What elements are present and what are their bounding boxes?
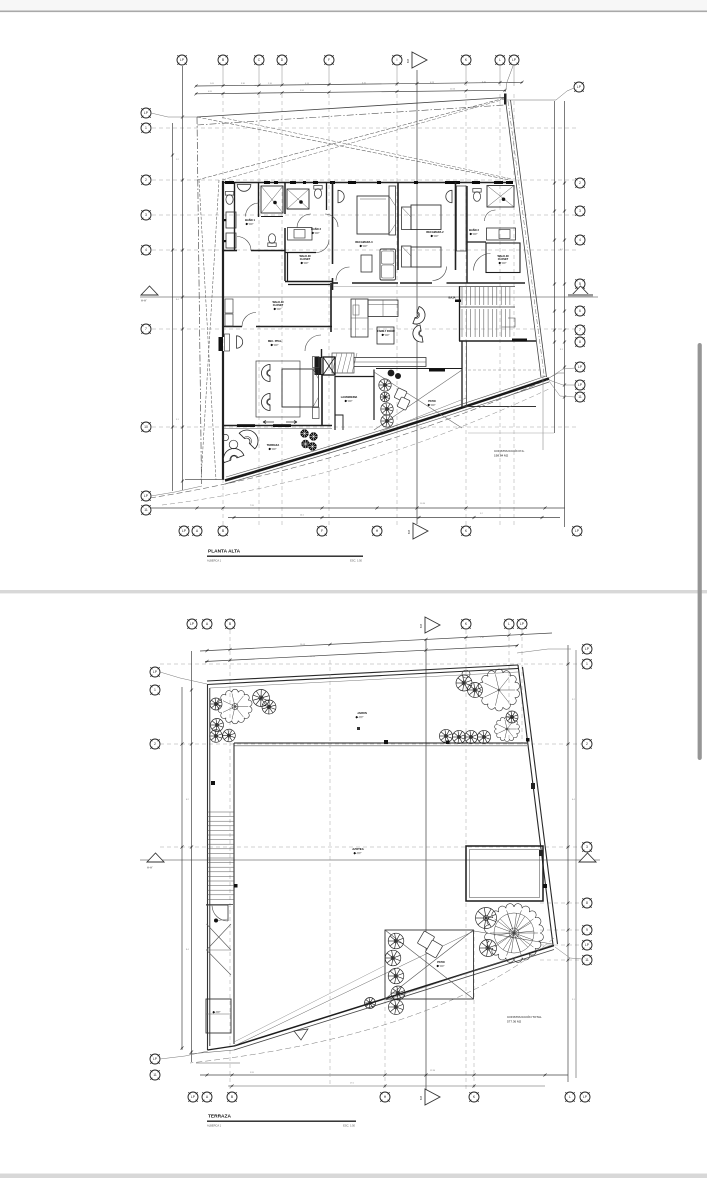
svg-text:LP: LP [583, 1095, 588, 1099]
svg-text:JARDIN: JARDIN [357, 711, 367, 715]
svg-text:CLOSET: CLOSET [498, 257, 509, 261]
svg-text:CONSTRUCCIÓN TOTAL: CONSTRUCCIÓN TOTAL [507, 1014, 542, 1019]
svg-text:11: 11 [153, 1073, 157, 1077]
svg-text:1: 1 [154, 688, 156, 692]
svg-text:RECAMARA 3: RECAMARA 3 [355, 240, 373, 244]
svg-text:L: L [508, 622, 510, 626]
svg-text:LP: LP [578, 365, 583, 369]
svg-text:CONSTRUCCIÓN P.A.: CONSTRUCCIÓN P.A. [494, 448, 525, 453]
svg-text:3: 3 [586, 845, 588, 849]
svg-text:8: 8 [579, 340, 581, 344]
svg-text:10.30: 10.30 [420, 503, 426, 505]
svg-text:LP: LP [153, 670, 158, 674]
svg-text:11: 11 [578, 395, 582, 399]
svg-text:A-A': A-A' [147, 866, 153, 870]
svg-text:BAJA: BAJA [448, 296, 455, 300]
svg-text:RECAMARA 2: RECAMARA 2 [426, 230, 444, 234]
svg-text:LP: LP [144, 494, 149, 498]
svg-text:8: 8 [586, 901, 588, 905]
svg-text:LP: LP [520, 622, 525, 626]
svg-text:AZOTEA: AZOTEA [352, 847, 364, 851]
svg-text:7: 7 [579, 328, 581, 332]
svg-text:CLOSET: CLOSET [300, 257, 311, 261]
svg-text:ALBERCA 1: ALBERCA 1 [207, 559, 222, 563]
svg-text:4: 4 [579, 238, 581, 242]
svg-text:7: 7 [145, 327, 147, 331]
svg-text:B-B: B-B [407, 530, 411, 535]
svg-text:F: F [328, 58, 330, 62]
svg-text:PATIO: PATIO [437, 960, 445, 964]
svg-text:10.10: 10.10 [310, 656, 316, 658]
svg-text:10: 10 [144, 425, 148, 429]
svg-text:1: 1 [145, 126, 147, 130]
svg-text:B-B: B-B [419, 624, 423, 629]
svg-text:TERRAZA: TERRAZA [267, 443, 280, 447]
svg-text:LP: LP [577, 85, 582, 89]
svg-text:14.05: 14.05 [300, 644, 306, 646]
svg-text:L: L [499, 58, 501, 62]
svg-text:12.50: 12.50 [450, 89, 456, 91]
svg-text:LP: LP [512, 58, 517, 62]
svg-text:LP: LP [575, 529, 580, 533]
svg-text:3: 3 [579, 209, 581, 213]
svg-text:5: 5 [579, 282, 581, 286]
svg-text:PLANTA ALTA: PLANTA ALTA [208, 549, 241, 555]
svg-text:I: I [397, 58, 398, 62]
svg-text:FAMILY ROOM: FAMILY ROOM [377, 330, 394, 333]
svg-text:577.36 M2: 577.36 M2 [507, 1020, 522, 1024]
svg-text:LP: LP [585, 647, 590, 651]
svg-text:REC. PPAL.: REC. PPAL. [268, 339, 283, 343]
svg-text:2: 2 [586, 742, 588, 746]
svg-text:12.30: 12.30 [430, 1070, 436, 1072]
svg-text:LP: LP [191, 1095, 196, 1099]
svg-text:198.84 M2: 198.84 M2 [494, 454, 509, 458]
svg-text:PATIO: PATIO [428, 399, 436, 403]
svg-text:LP: LP [153, 1057, 158, 1061]
svg-text:11: 11 [585, 958, 589, 962]
svg-text:B-B: B-B [406, 59, 410, 64]
svg-text:ESC. 1:50: ESC. 1:50 [343, 1124, 355, 1128]
svg-text:LP: LP [144, 111, 149, 115]
svg-text:LP: LP [578, 383, 583, 387]
svg-text:2: 2 [579, 181, 581, 185]
svg-text:B-B: B-B [419, 1096, 423, 1101]
svg-text:TERRAZA: TERRAZA [208, 1114, 231, 1120]
svg-text:ALBERCA 1: ALBERCA 1 [207, 1124, 222, 1128]
svg-text:3: 3 [145, 213, 147, 217]
svg-text:4: 4 [145, 248, 147, 252]
svg-text:LP: LP [585, 943, 590, 947]
svg-text:A-A': A-A' [141, 299, 147, 303]
svg-text:LAVANDERIA: LAVANDERIA [341, 395, 358, 399]
svg-text:9: 9 [586, 928, 588, 932]
svg-text:LP: LP [182, 529, 187, 533]
svg-text:LP: LP [180, 58, 185, 62]
svg-text:2: 2 [154, 742, 156, 746]
svg-text:6: 6 [579, 309, 581, 313]
svg-text:1: 1 [586, 662, 588, 666]
svg-text:CLOSET: CLOSET [273, 303, 284, 307]
svg-text:11: 11 [144, 508, 148, 512]
svg-text:L: L [569, 1095, 571, 1099]
svg-text:LP: LP [190, 622, 195, 626]
svg-text:ESC. 1:50: ESC. 1:50 [350, 559, 362, 563]
svg-text:F: F [321, 529, 323, 533]
svg-text:2: 2 [145, 178, 147, 182]
